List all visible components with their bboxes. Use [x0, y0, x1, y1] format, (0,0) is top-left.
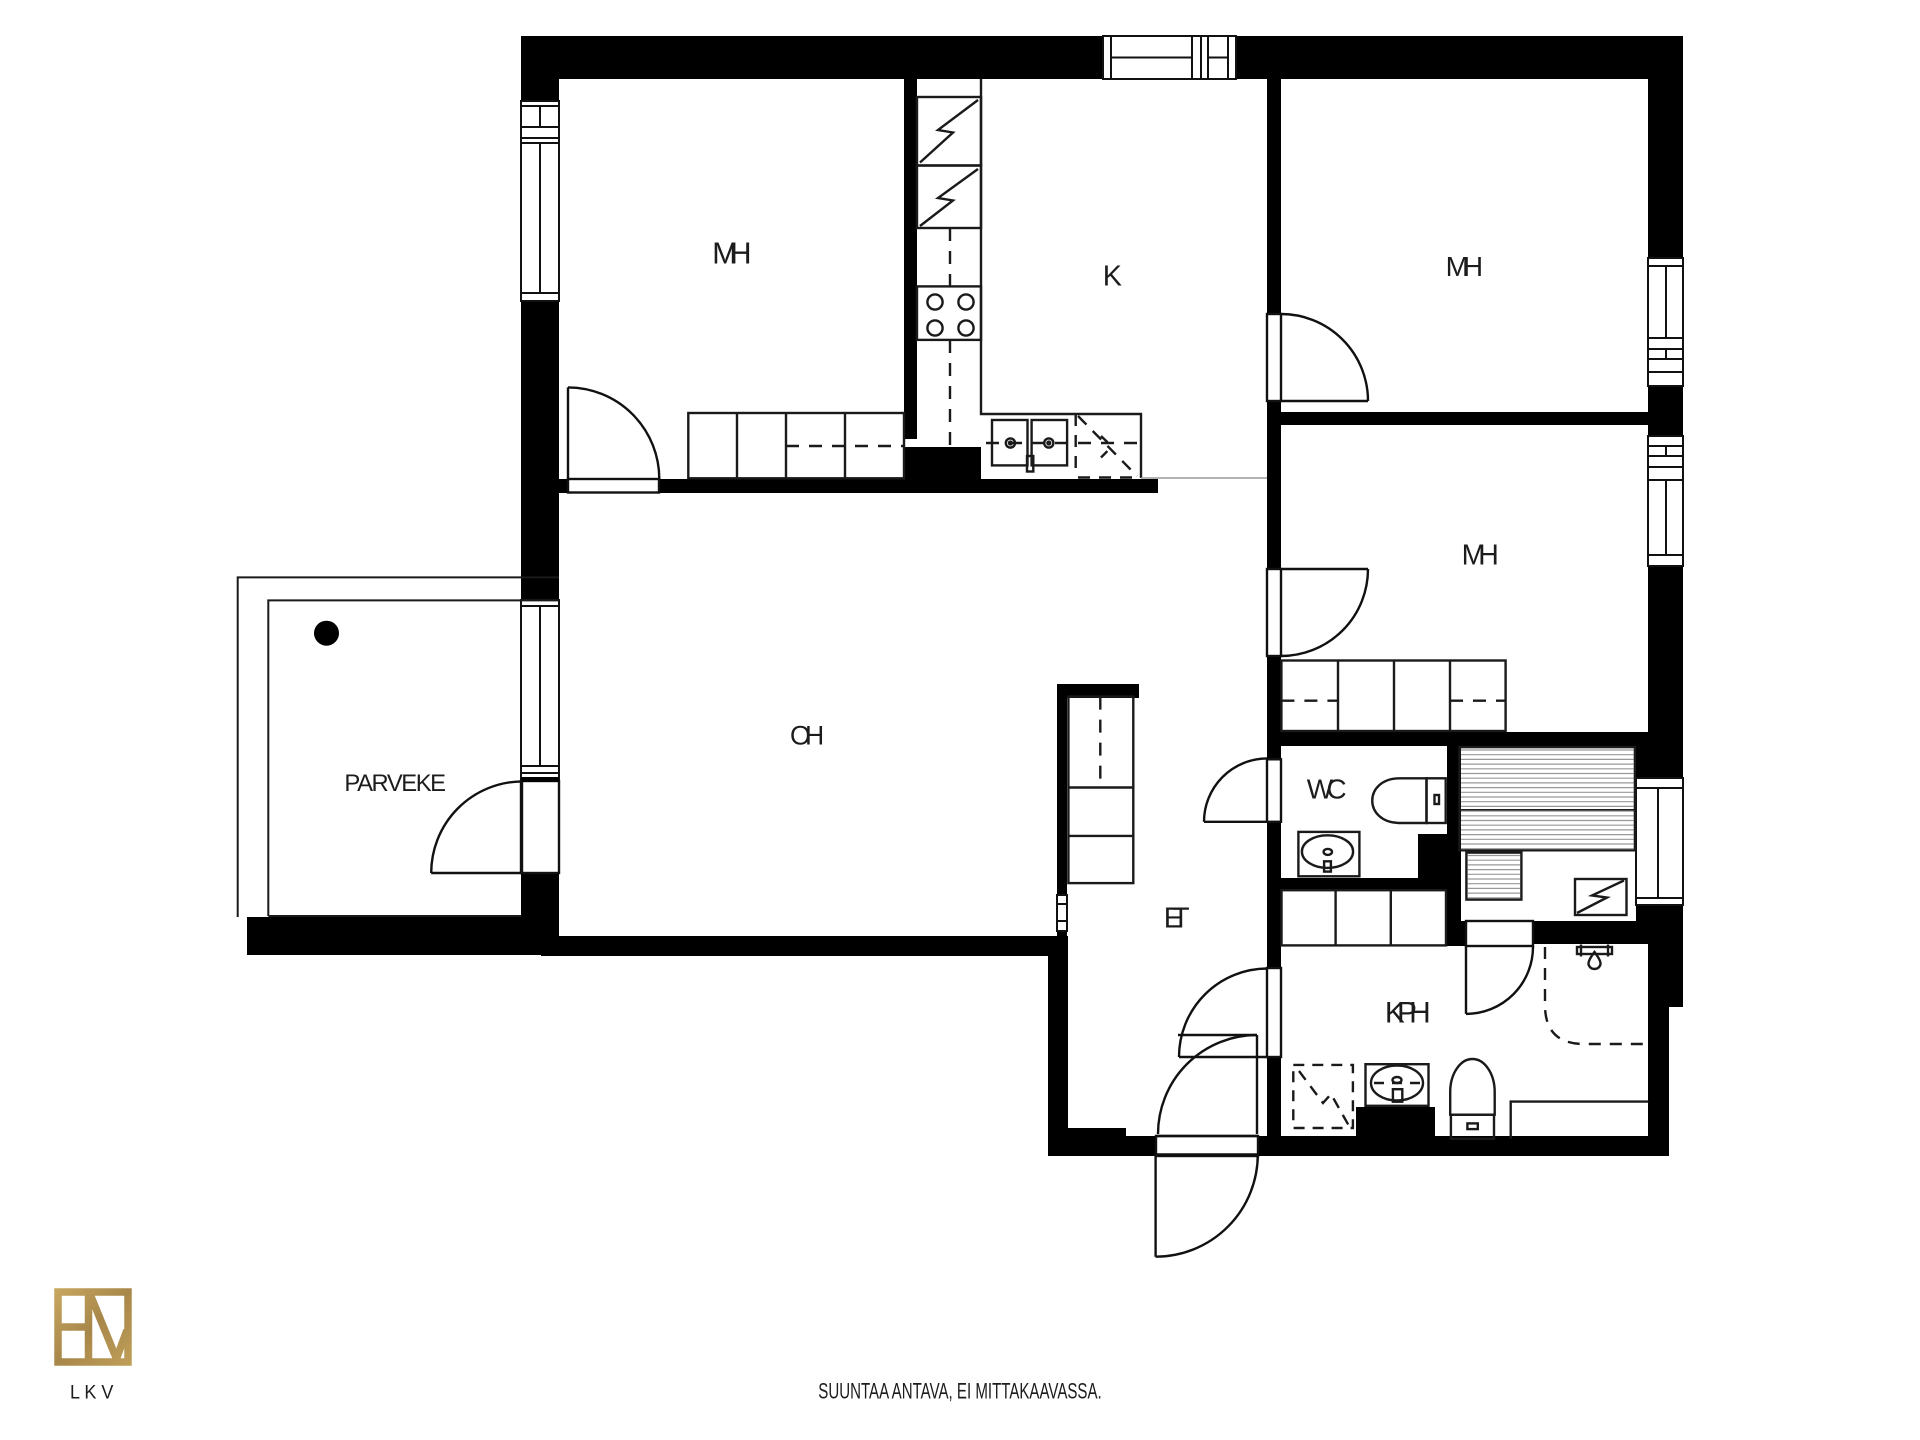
svg-text:ET: ET — [1164, 903, 1190, 935]
svg-text:MH: MH — [712, 236, 752, 271]
svg-text:PARVEKE: PARVEKE — [344, 770, 446, 797]
svg-text:MH: MH — [1446, 251, 1484, 282]
svg-text:SUUNTAA ANTAVA, EI MITTAKAAVAS: SUUNTAA ANTAVA, EI MITTAKAAVASSA. — [818, 1378, 1101, 1403]
svg-text:MH: MH — [1462, 540, 1499, 572]
svg-text:K: K — [1103, 261, 1122, 293]
svg-text:KPH: KPH — [1385, 997, 1431, 1030]
svg-text:WC: WC — [1307, 773, 1347, 804]
svg-text:OH: OH — [790, 721, 824, 751]
svg-text:L K V: L K V — [70, 1382, 113, 1403]
